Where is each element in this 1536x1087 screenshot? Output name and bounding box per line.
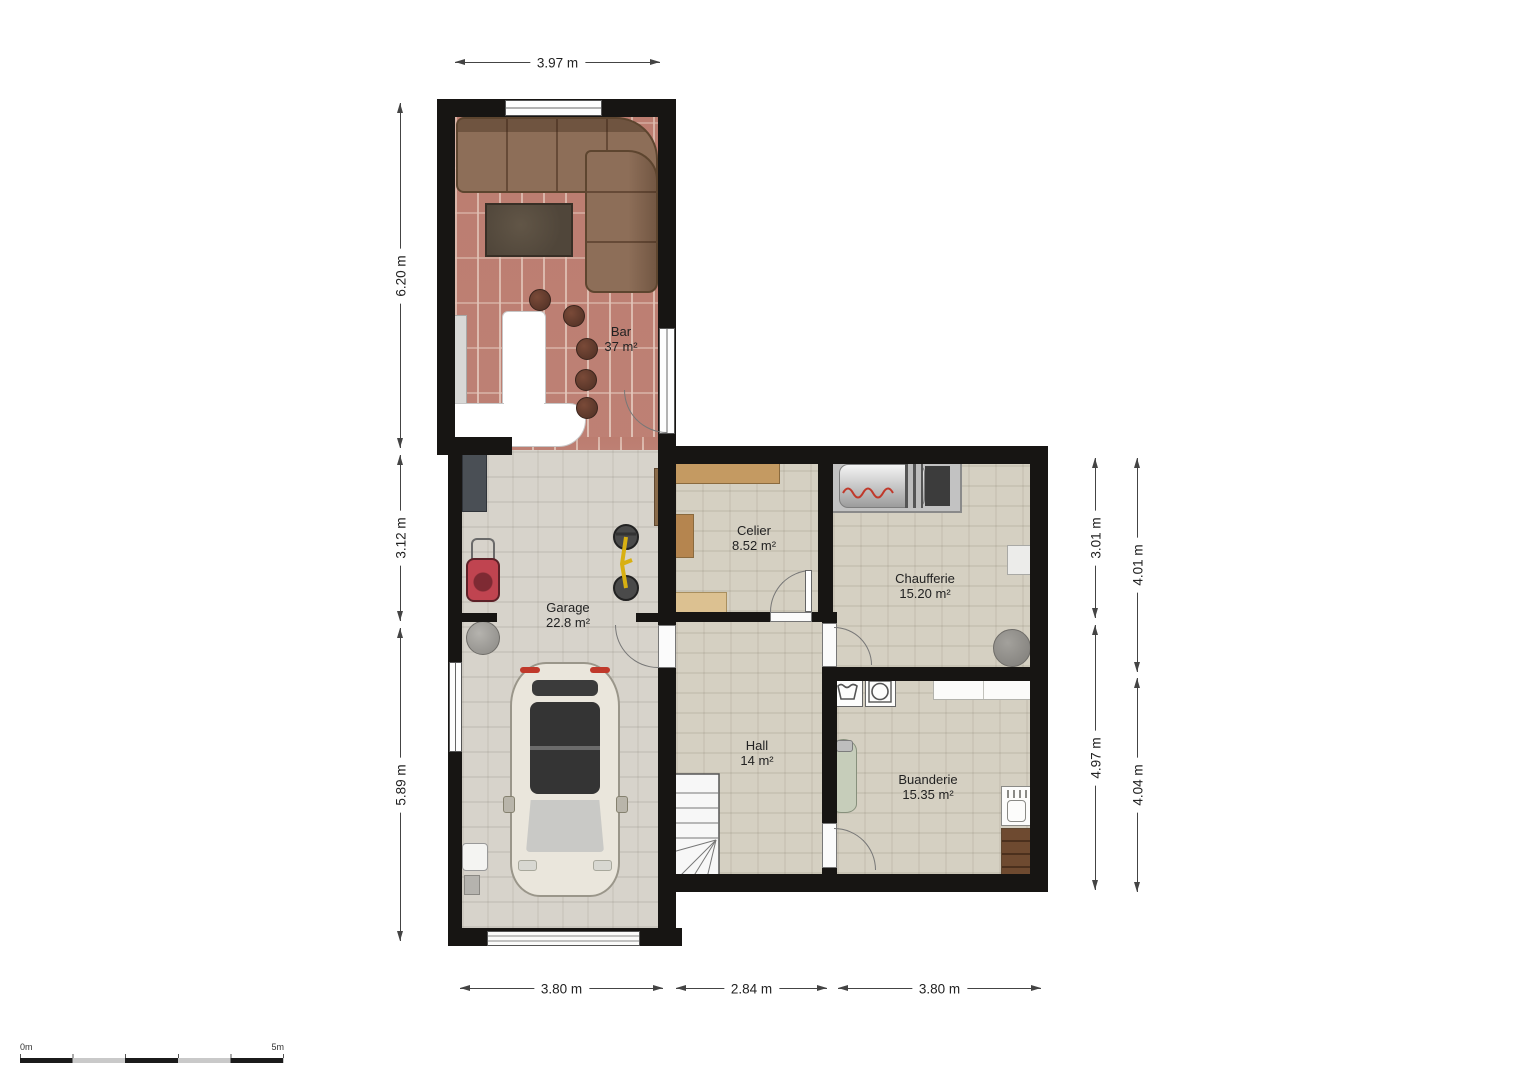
garage-bin xyxy=(466,621,500,655)
dimension-right-outer-2: 4.04 m xyxy=(1137,678,1138,892)
chaufferie-tank-ball xyxy=(993,629,1031,667)
car-windshield xyxy=(526,800,604,852)
faucet xyxy=(1007,790,1027,798)
dimension-bottom-3: 3.80 m xyxy=(838,988,1041,989)
dimension-right-inner-1: 3.01 m xyxy=(1095,458,1096,618)
celier-door-leaf xyxy=(805,570,812,612)
room-name: Celier xyxy=(732,523,776,538)
car-taillight xyxy=(590,667,610,673)
washing-machine-icon xyxy=(865,677,896,707)
garage-small-box xyxy=(464,875,480,895)
wall-bar-left xyxy=(437,99,455,455)
wall-chaufferie-buanderie xyxy=(822,667,1048,681)
scale-end-label: 5m xyxy=(271,1042,284,1052)
boiler-heat-coil xyxy=(841,481,905,501)
room-name: Buanderie xyxy=(898,772,957,787)
car-taillight xyxy=(520,667,540,673)
car-mirror xyxy=(503,796,515,813)
boiler xyxy=(831,457,962,513)
room-name: Bar xyxy=(604,324,637,339)
corner-sofa-right xyxy=(585,150,658,293)
scale-bar: 0m 5m xyxy=(20,1042,284,1066)
bar-back-counter xyxy=(453,315,467,409)
bar-counter-joint xyxy=(504,402,544,412)
lawnmower xyxy=(466,558,500,602)
wall-garage-hall-divider xyxy=(658,440,676,946)
room-area: 15.35 m² xyxy=(898,787,957,802)
wall-basement-bottom xyxy=(658,874,1048,892)
sink-basin xyxy=(1007,800,1026,822)
laundry-tub-icon xyxy=(833,677,863,707)
room-label-hall: Hall 14 m² xyxy=(740,738,773,768)
room-label-celier: Celier 8.52 m² xyxy=(732,523,776,553)
wall-bar-counter-stub xyxy=(458,444,510,453)
room-area: 22.8 m² xyxy=(546,615,590,630)
room-area: 37 m² xyxy=(604,339,637,354)
room-area: 8.52 m² xyxy=(732,538,776,553)
dimension-left-1: 6.20 m xyxy=(400,103,401,448)
dimension-right-outer-1: 4.01 m xyxy=(1137,458,1138,672)
dimension-value: 6.20 m xyxy=(394,248,409,303)
scale-segments xyxy=(20,1058,284,1063)
bar-stool xyxy=(529,289,551,311)
garage-hall-door xyxy=(658,625,676,668)
sink-unit xyxy=(1001,786,1031,826)
room-area: 15.20 m² xyxy=(895,586,955,601)
iron xyxy=(836,740,853,752)
wall-celier-chaufferie xyxy=(818,446,833,622)
dimension-top: 3.97 m xyxy=(455,62,660,63)
car-mirror xyxy=(616,796,628,813)
wall-garage-stub-left xyxy=(462,613,497,622)
dimension-value: 2.84 m xyxy=(724,982,779,997)
dimension-value: 3.97 m xyxy=(530,56,585,71)
bar-stool xyxy=(576,338,598,360)
room-label-garage: Garage 22.8 m² xyxy=(546,600,590,630)
dimension-value: 4.01 m xyxy=(1131,537,1146,592)
dimension-right-inner-2: 4.97 m xyxy=(1095,625,1096,890)
boiler-control-box xyxy=(925,466,950,506)
dimension-bottom-2: 2.84 m xyxy=(676,988,827,989)
car-rear-window xyxy=(532,680,598,696)
scale-start-label: 0m xyxy=(20,1042,33,1052)
bar-stool xyxy=(563,305,585,327)
bicycle xyxy=(608,520,644,606)
dimension-left-3: 5.89 m xyxy=(400,628,401,941)
room-label-chaufferie: Chaufferie 15.20 m² xyxy=(895,571,955,601)
bar-counter-vertical xyxy=(502,311,546,411)
coffee-table xyxy=(485,203,573,257)
wall-garage-stub-right xyxy=(636,613,658,622)
celier-shelf-bottom xyxy=(675,592,727,613)
chaufferie-shelf xyxy=(1007,545,1032,575)
car-roof-panels xyxy=(530,702,600,794)
bar-top-window xyxy=(505,100,602,116)
dimension-value: 3.12 m xyxy=(394,510,409,565)
garage-left-window xyxy=(449,662,462,752)
room-label-bar: Bar 37 m² xyxy=(604,324,637,354)
car-headlight xyxy=(593,860,612,871)
wall-basement-top xyxy=(658,446,1048,464)
celier-hall-door xyxy=(770,612,812,622)
floor-plan: Bar 37 m² Garage 22.8 m² Celier 8.52 m² … xyxy=(0,0,1536,1087)
room-name: Chaufferie xyxy=(895,571,955,586)
buanderie-cabinet xyxy=(1001,828,1032,880)
dimension-left-2: 3.12 m xyxy=(400,455,401,621)
dimension-value: 3.80 m xyxy=(534,982,589,997)
car-headlight xyxy=(518,860,537,871)
dimension-value: 3.01 m xyxy=(1089,510,1104,565)
celier-cabinet xyxy=(673,514,694,558)
bar-stool xyxy=(575,369,597,391)
car-body xyxy=(510,662,620,897)
car xyxy=(510,662,628,897)
dimension-value: 4.97 m xyxy=(1089,730,1104,785)
room-name: Garage xyxy=(546,600,590,615)
boiler-pipes xyxy=(905,464,923,508)
garage-cabinet xyxy=(462,450,487,512)
garage-door xyxy=(487,931,640,946)
dimension-bottom-1: 3.80 m xyxy=(460,988,663,989)
dimension-value: 4.04 m xyxy=(1131,757,1146,812)
room-name: Hall xyxy=(740,738,773,753)
room-area: 14 m² xyxy=(740,753,773,768)
room-label-buanderie: Buanderie 15.35 m² xyxy=(898,772,957,802)
dimension-value: 5.89 m xyxy=(394,757,409,812)
bar-stool xyxy=(576,397,598,419)
garage-step xyxy=(462,843,488,871)
dimension-value: 3.80 m xyxy=(912,982,967,997)
